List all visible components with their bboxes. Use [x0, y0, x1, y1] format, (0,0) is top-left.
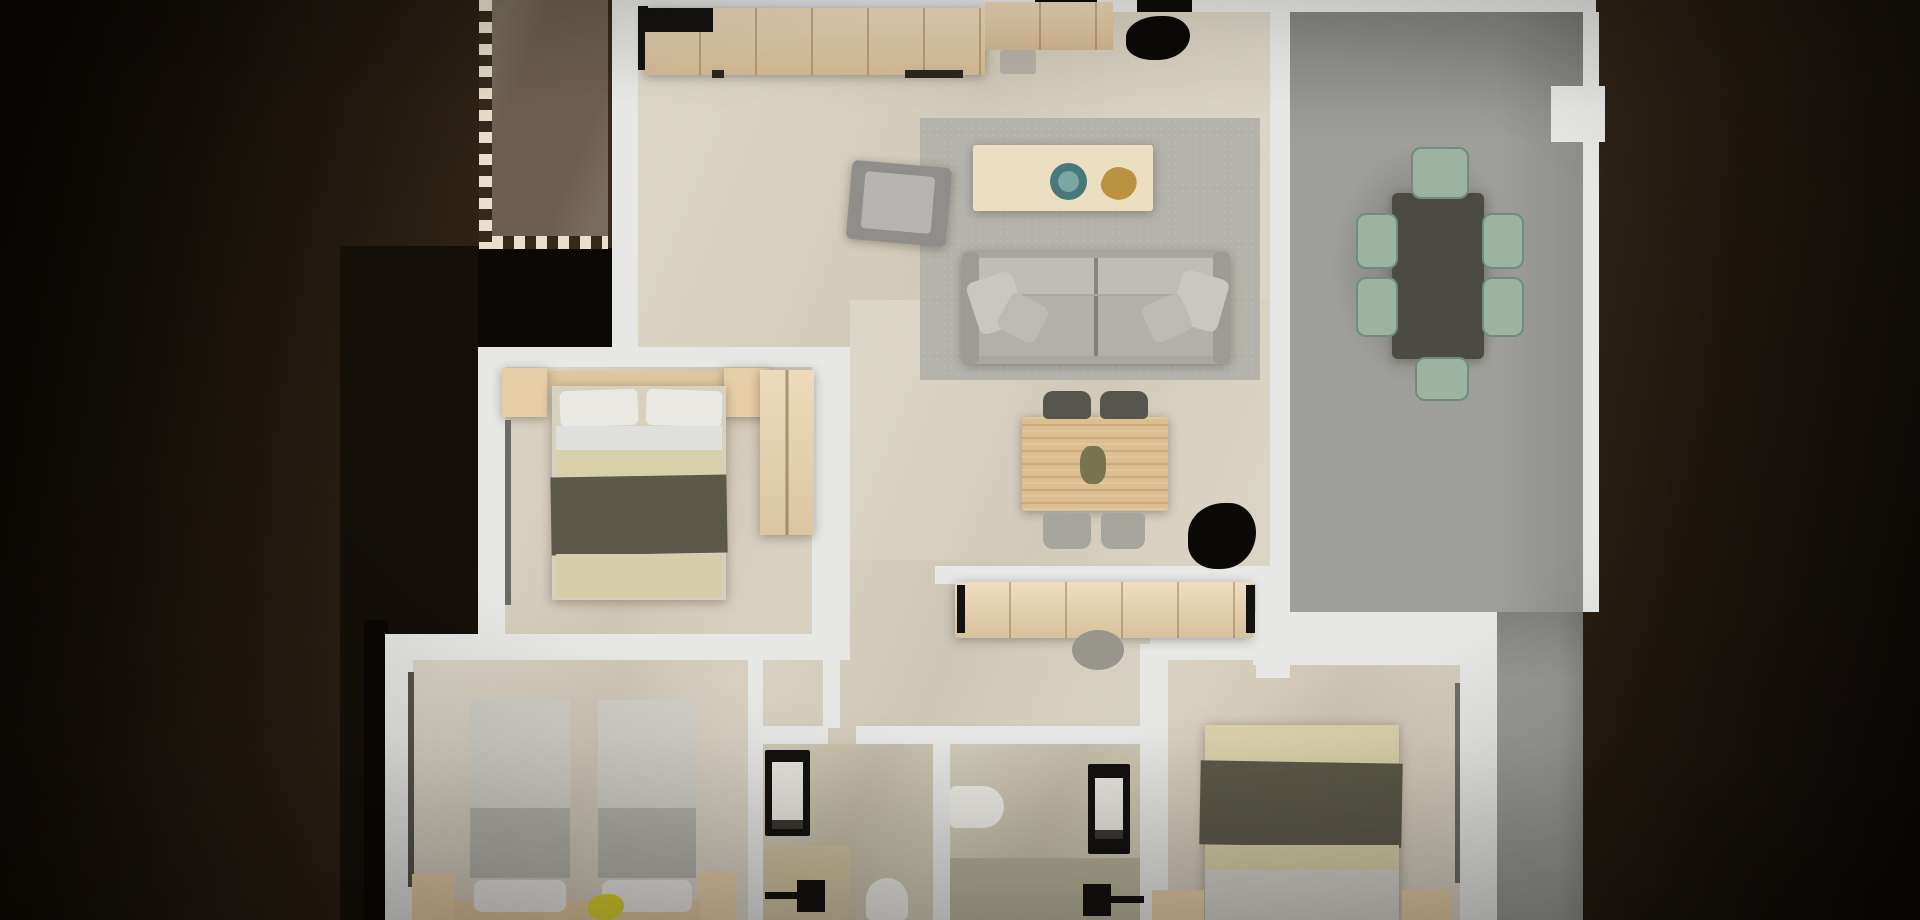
overlay-layer	[0, 0, 1920, 920]
floor-plan-render	[0, 0, 1920, 920]
vignette	[0, 0, 1920, 920]
